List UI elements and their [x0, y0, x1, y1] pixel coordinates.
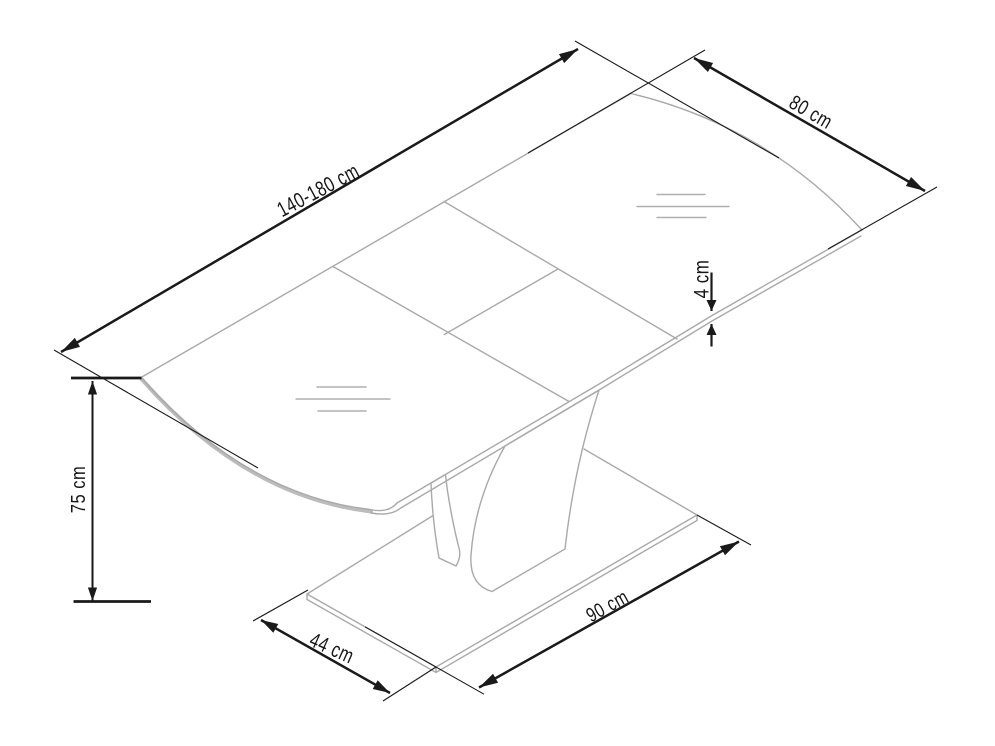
- svg-text:75 cm: 75 cm: [66, 466, 89, 513]
- svg-text:4 cm: 4 cm: [691, 260, 714, 299]
